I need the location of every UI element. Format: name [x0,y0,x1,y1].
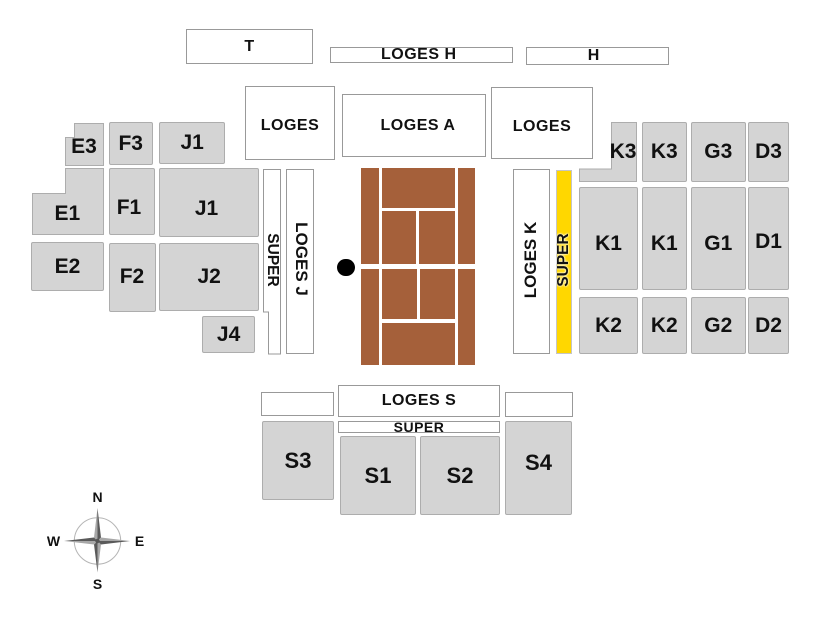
svg-text:N: N [92,489,102,505]
svg-text:S: S [93,576,102,592]
svg-text:W: W [47,533,61,549]
svg-text:E: E [135,533,144,549]
